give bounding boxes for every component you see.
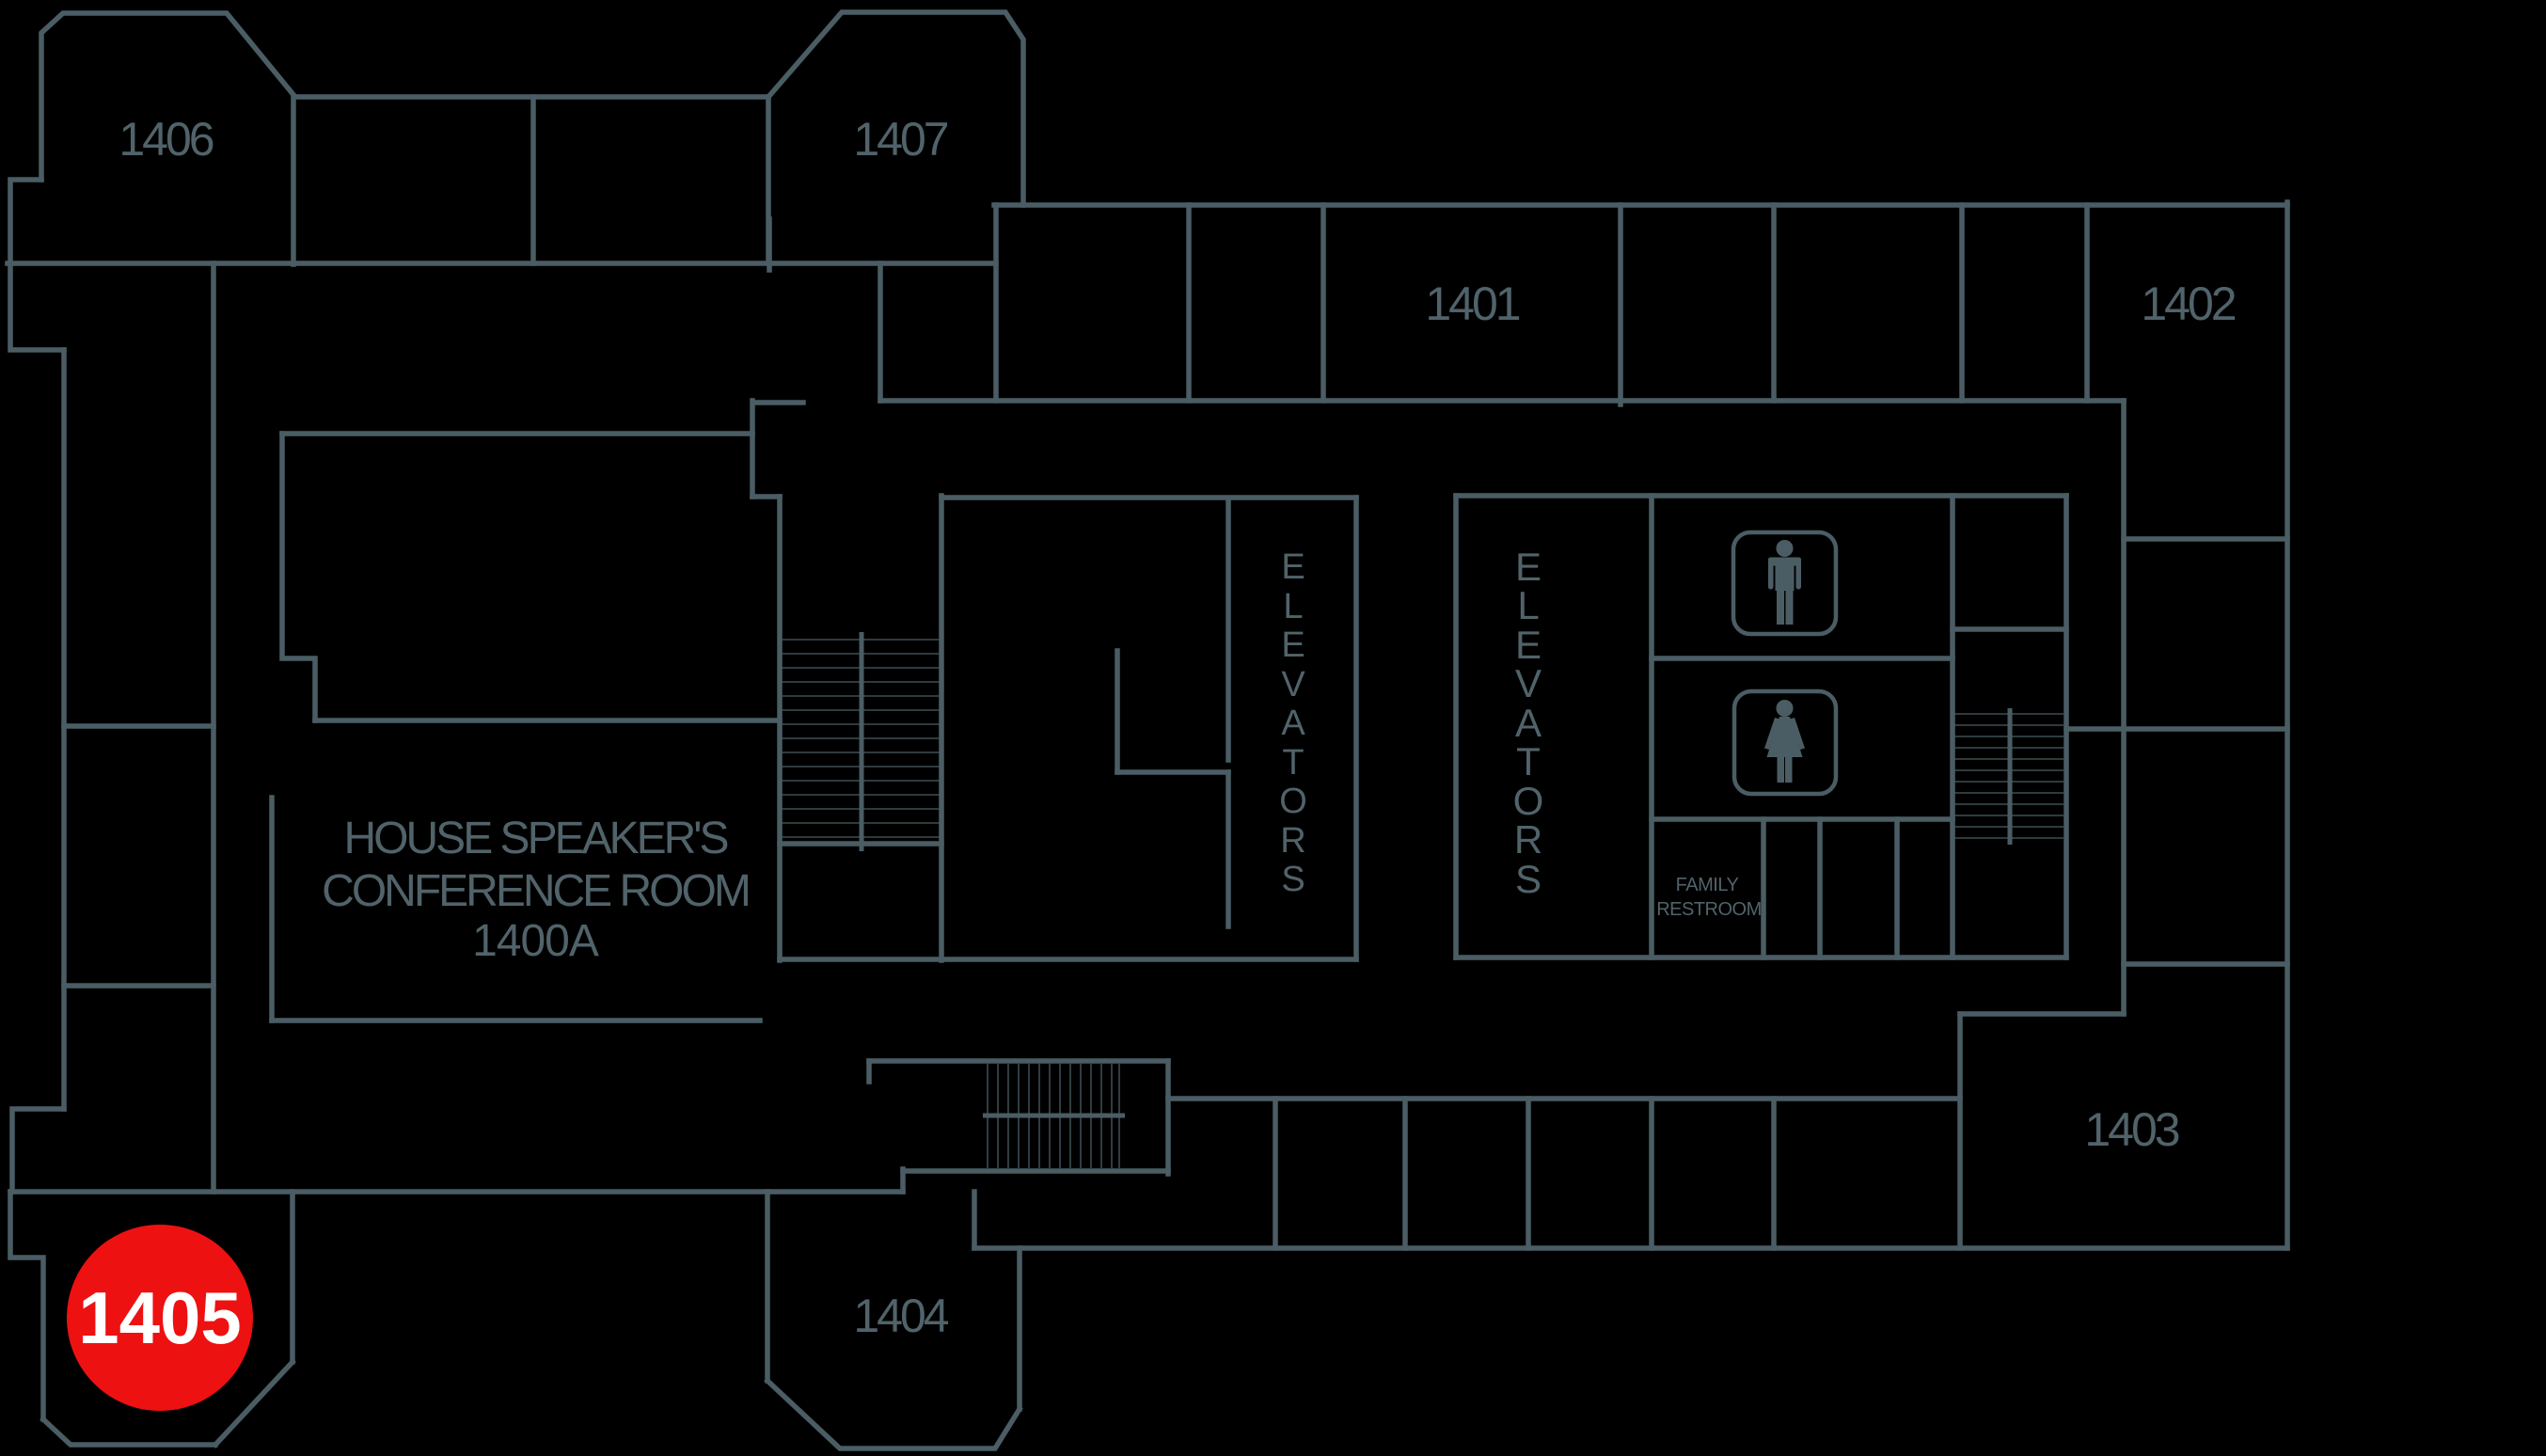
svg-text:T: T (1516, 739, 1541, 783)
svg-text:1400A: 1400A (472, 916, 599, 966)
svg-text:1401: 1401 (1425, 277, 1519, 330)
svg-text:FAMILY: FAMILY (1676, 875, 1739, 895)
svg-text:1407: 1407 (853, 113, 947, 166)
svg-text:1402: 1402 (2141, 277, 2235, 330)
svg-text:A: A (1281, 704, 1305, 743)
svg-text:A: A (1515, 701, 1542, 745)
svg-text:RESTROOM: RESTROOM (1656, 899, 1762, 920)
svg-text:CONFERENCE ROOM: CONFERENCE ROOM (322, 866, 749, 916)
svg-text:S: S (1515, 857, 1542, 901)
svg-text:1403: 1403 (2084, 1103, 2178, 1156)
svg-text:E: E (1281, 547, 1305, 587)
svg-text:O: O (1279, 782, 1307, 821)
svg-text:L: L (1517, 583, 1539, 627)
svg-text:E: E (1281, 625, 1305, 665)
svg-text:T: T (1282, 743, 1304, 783)
svg-text:L: L (1283, 587, 1303, 626)
svg-text:O: O (1513, 779, 1544, 823)
svg-text:V: V (1281, 665, 1305, 704)
svg-text:V: V (1515, 661, 1542, 705)
svg-text:1406: 1406 (119, 113, 213, 166)
svg-text:R: R (1280, 821, 1305, 861)
svg-text:1404: 1404 (853, 1290, 948, 1342)
svg-text:R: R (1514, 817, 1542, 862)
svg-text:S: S (1281, 860, 1305, 899)
svg-text:E: E (1515, 623, 1542, 667)
svg-text:1405: 1405 (78, 1276, 242, 1359)
svg-text:E: E (1515, 545, 1542, 589)
svg-text:HOUSE SPEAKER'S: HOUSE SPEAKER'S (344, 814, 728, 863)
